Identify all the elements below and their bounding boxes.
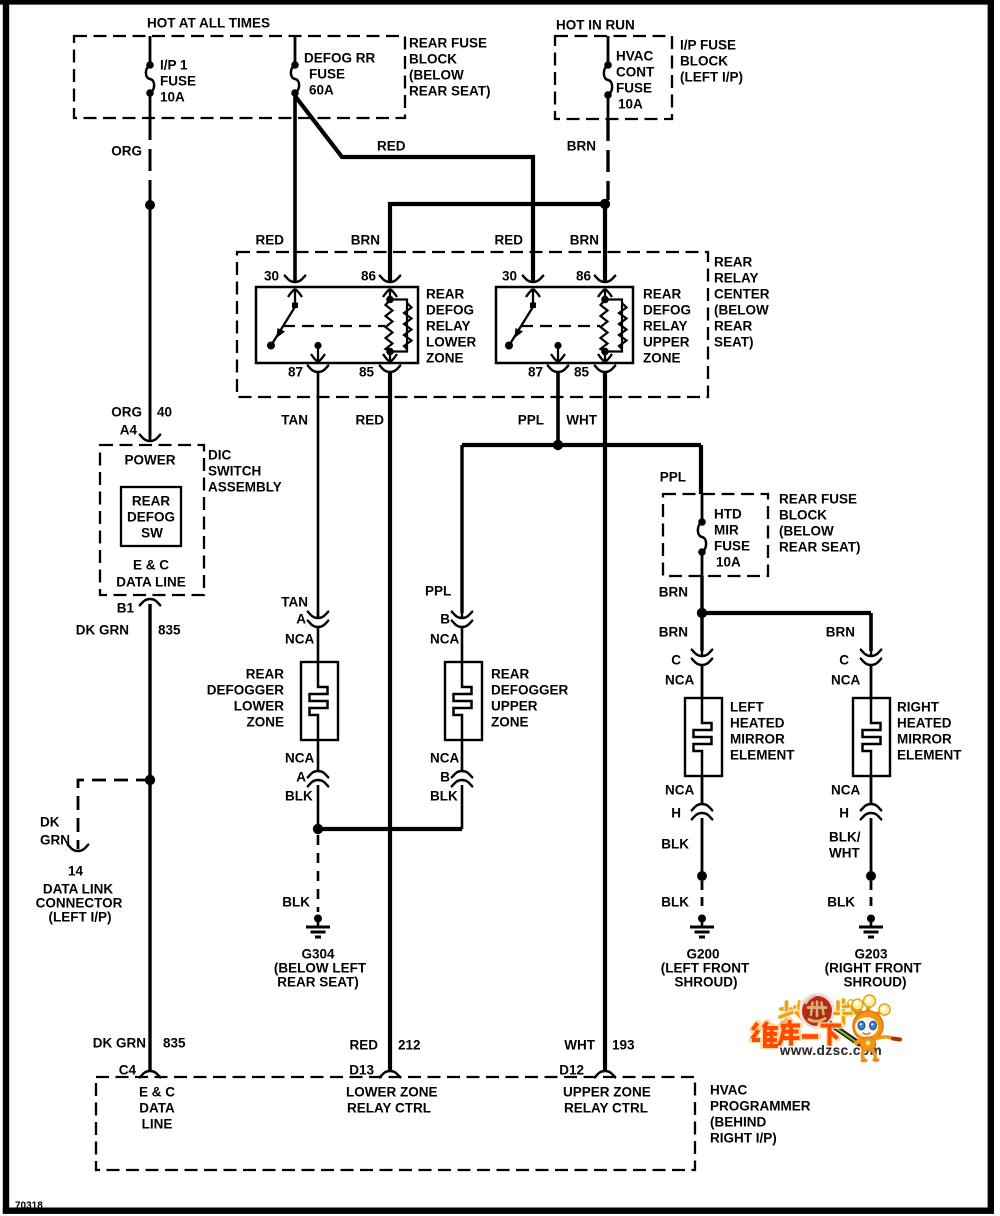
svg-text:WHT: WHT: [829, 846, 860, 861]
svg-text:BLK/: BLK/: [829, 830, 861, 845]
svg-text:ORG: ORG: [111, 144, 142, 159]
svg-text:PROGRAMMER: PROGRAMMER: [710, 1099, 811, 1114]
svg-text:MIRROR: MIRROR: [730, 732, 785, 747]
svg-text:BRN: BRN: [570, 233, 599, 248]
svg-text:RED: RED: [355, 413, 384, 428]
svg-text:REAR FUSE: REAR FUSE: [779, 492, 857, 507]
svg-text:RED: RED: [349, 1038, 378, 1053]
svg-text:G200: G200: [686, 947, 719, 962]
svg-text:HOT IN RUN: HOT IN RUN: [556, 18, 635, 33]
svg-text:BLK: BLK: [661, 837, 689, 852]
svg-text:A4: A4: [120, 423, 138, 438]
svg-text:10A: 10A: [716, 555, 741, 570]
svg-text:HVAC: HVAC: [710, 1083, 748, 1098]
svg-text:POWER: POWER: [124, 453, 175, 468]
svg-text:212: 212: [398, 1038, 421, 1053]
svg-text:I/P FUSE: I/P FUSE: [680, 38, 736, 53]
svg-text:CONT: CONT: [616, 65, 655, 80]
svg-text:NCA: NCA: [430, 632, 459, 647]
svg-text:10A: 10A: [618, 97, 643, 112]
svg-text:CENTER: CENTER: [714, 287, 770, 302]
svg-text:DEFOGGER: DEFOGGER: [491, 683, 569, 698]
svg-text:RIGHT: RIGHT: [897, 700, 940, 715]
svg-text:DIC: DIC: [208, 448, 232, 463]
svg-text:(LEFT I/P): (LEFT I/P): [49, 910, 112, 925]
svg-text:REAR: REAR: [246, 667, 285, 682]
svg-text:193: 193: [612, 1038, 635, 1053]
svg-text:DATA LINE: DATA LINE: [116, 575, 186, 590]
svg-text:GRN: GRN: [40, 833, 70, 848]
svg-text:ASSEMBLY: ASSEMBLY: [208, 480, 282, 495]
svg-text:REAR: REAR: [643, 287, 682, 302]
svg-text:(LEFT I/P): (LEFT I/P): [680, 70, 743, 85]
svg-text:HEATED: HEATED: [897, 716, 952, 731]
svg-text:BLOCK: BLOCK: [409, 52, 457, 67]
svg-text:RED: RED: [494, 233, 523, 248]
svg-text:ZONE: ZONE: [491, 715, 529, 730]
svg-text:WHT: WHT: [566, 413, 597, 428]
svg-text:DEFOG RR: DEFOG RR: [304, 51, 376, 66]
svg-text:REAR: REAR: [714, 255, 753, 270]
svg-text:LOWER: LOWER: [234, 699, 284, 714]
svg-text:835: 835: [158, 623, 181, 638]
svg-text:D12: D12: [559, 1063, 584, 1078]
svg-text:87: 87: [288, 365, 303, 380]
svg-text:RELAY: RELAY: [643, 319, 688, 334]
svg-text:UPPER ZONE: UPPER ZONE: [563, 1085, 651, 1100]
svg-text:ORG: ORG: [111, 405, 142, 420]
svg-text:LOWER: LOWER: [426, 335, 476, 350]
svg-text:REAR: REAR: [132, 494, 171, 509]
svg-text:SWITCH: SWITCH: [208, 464, 261, 479]
svg-text:C4: C4: [119, 1063, 137, 1078]
svg-text:REAR: REAR: [426, 287, 465, 302]
svg-text:DK: DK: [40, 815, 60, 830]
svg-text:ELEMENT: ELEMENT: [897, 748, 962, 763]
svg-text:HTD: HTD: [714, 507, 742, 522]
svg-text:DEFOG: DEFOG: [643, 303, 691, 318]
svg-text:NCA: NCA: [430, 751, 459, 766]
svg-text:E & C: E & C: [139, 1085, 175, 1100]
svg-text:REAR FUSE: REAR FUSE: [409, 36, 487, 51]
svg-text:RELAY CTRL: RELAY CTRL: [347, 1101, 431, 1116]
svg-text:(BELOW LEFT: (BELOW LEFT: [274, 961, 367, 976]
svg-text:HOT AT ALL TIMES: HOT AT ALL TIMES: [147, 16, 270, 31]
svg-text:60A: 60A: [309, 83, 334, 98]
svg-text:BLK: BLK: [285, 789, 313, 804]
svg-text:HVAC: HVAC: [616, 49, 654, 64]
svg-text:BLOCK: BLOCK: [779, 508, 827, 523]
svg-text:ZONE: ZONE: [643, 351, 681, 366]
svg-text:PPL: PPL: [518, 413, 544, 428]
svg-text:86: 86: [361, 269, 377, 284]
svg-text:NCA: NCA: [285, 632, 314, 647]
svg-text:(BELOW: (BELOW: [779, 524, 834, 539]
svg-text:SHROUD): SHROUD): [844, 975, 907, 990]
svg-text:BLK: BLK: [661, 895, 689, 910]
svg-text:TAN: TAN: [281, 595, 308, 610]
svg-text:85: 85: [574, 365, 590, 380]
svg-text:BRN: BRN: [659, 585, 688, 600]
svg-text:30: 30: [502, 269, 517, 284]
svg-text:LINE: LINE: [142, 1117, 173, 1132]
svg-text:H: H: [671, 806, 681, 821]
svg-text:A: A: [296, 770, 306, 785]
svg-text:ZONE: ZONE: [246, 715, 284, 730]
svg-text:(BELOW: (BELOW: [409, 68, 464, 83]
svg-text:40: 40: [157, 405, 172, 420]
svg-text:I/P 1: I/P 1: [160, 58, 188, 73]
svg-text:A: A: [296, 612, 306, 627]
svg-text:70318: 70318: [15, 1201, 43, 1212]
svg-text:REAR: REAR: [714, 319, 753, 334]
svg-text:REAR: REAR: [491, 667, 530, 682]
svg-text:MIR: MIR: [714, 523, 739, 538]
svg-text:BLOCK: BLOCK: [680, 54, 728, 69]
svg-text:MIRROR: MIRROR: [897, 732, 952, 747]
svg-text:REAR SEAT): REAR SEAT): [779, 540, 861, 555]
svg-text:DK GRN: DK GRN: [93, 1036, 146, 1051]
svg-text:LEFT: LEFT: [730, 700, 764, 715]
svg-text:DEFOGGER: DEFOGGER: [207, 683, 285, 698]
svg-text:SW: SW: [141, 526, 163, 541]
svg-text:85: 85: [359, 365, 375, 380]
svg-text:BRN: BRN: [826, 625, 855, 640]
svg-text:RELAY CTRL: RELAY CTRL: [564, 1101, 648, 1116]
svg-text:D13: D13: [349, 1063, 374, 1078]
svg-text:ZONE: ZONE: [426, 351, 464, 366]
svg-text:NCA: NCA: [831, 673, 860, 688]
svg-text:(LEFT FRONT: (LEFT FRONT: [661, 961, 750, 976]
svg-text:RED: RED: [377, 139, 406, 154]
svg-text:BRN: BRN: [567, 139, 596, 154]
svg-text:BRN: BRN: [351, 233, 380, 248]
svg-text:B1: B1: [117, 601, 135, 616]
svg-text:BLK: BLK: [430, 789, 458, 804]
svg-text:PPL: PPL: [660, 470, 686, 485]
svg-text:FUSE: FUSE: [616, 81, 652, 96]
svg-text:BLK: BLK: [282, 895, 310, 910]
svg-text:(BELOW: (BELOW: [714, 303, 769, 318]
svg-text:B: B: [440, 770, 450, 785]
svg-text:RELAY: RELAY: [426, 319, 471, 334]
svg-text:TAN: TAN: [281, 413, 308, 428]
svg-text:B: B: [440, 612, 450, 627]
svg-text:PPL: PPL: [425, 584, 451, 599]
svg-text:CONNECTOR: CONNECTOR: [36, 896, 123, 911]
svg-text:10A: 10A: [160, 90, 185, 105]
svg-text:REAR SEAT): REAR SEAT): [409, 84, 491, 99]
svg-text:NCA: NCA: [831, 783, 860, 798]
svg-text:FUSE: FUSE: [309, 67, 345, 82]
svg-text:UPPER: UPPER: [643, 335, 690, 350]
svg-text:86: 86: [576, 269, 592, 284]
svg-text:87: 87: [528, 365, 543, 380]
svg-text:FUSE: FUSE: [160, 74, 196, 89]
svg-text:RELAY: RELAY: [714, 271, 759, 286]
svg-text:REAR SEAT): REAR SEAT): [277, 975, 359, 990]
svg-text:C: C: [671, 653, 681, 668]
svg-text:DEFOG: DEFOG: [426, 303, 474, 318]
svg-text:SEAT): SEAT): [714, 335, 754, 350]
svg-text:BRN: BRN: [659, 625, 688, 640]
svg-text:DEFOG: DEFOG: [127, 510, 175, 525]
svg-text:WHT: WHT: [564, 1038, 595, 1053]
svg-text:ELEMENT: ELEMENT: [730, 748, 795, 763]
svg-text:835: 835: [163, 1036, 186, 1051]
svg-text:14: 14: [68, 864, 84, 879]
svg-text:DATA: DATA: [139, 1101, 175, 1116]
svg-text:RIGHT I/P): RIGHT I/P): [710, 1131, 777, 1146]
svg-text:FUSE: FUSE: [714, 539, 750, 554]
svg-text:30: 30: [264, 269, 279, 284]
svg-text:(RIGHT FRONT: (RIGHT FRONT: [825, 961, 922, 976]
svg-text:LOWER ZONE: LOWER ZONE: [346, 1085, 438, 1100]
svg-text:G304: G304: [301, 947, 335, 962]
svg-text:NCA: NCA: [665, 783, 694, 798]
svg-text:G203: G203: [854, 947, 888, 962]
svg-text:H: H: [839, 806, 849, 821]
svg-text:HEATED: HEATED: [730, 716, 785, 731]
svg-text:DK GRN: DK GRN: [76, 623, 129, 638]
svg-text:E & C: E & C: [133, 558, 169, 573]
svg-text:DATA LINK: DATA LINK: [43, 882, 113, 897]
svg-text:BLK: BLK: [827, 895, 855, 910]
svg-text:RED: RED: [255, 233, 284, 248]
svg-text:(BEHIND: (BEHIND: [710, 1115, 766, 1130]
svg-text:C: C: [839, 653, 849, 668]
svg-text:NCA: NCA: [285, 751, 314, 766]
svg-text:SHROUD): SHROUD): [675, 975, 738, 990]
svg-text:NCA: NCA: [665, 673, 694, 688]
svg-text:UPPER: UPPER: [491, 699, 538, 714]
